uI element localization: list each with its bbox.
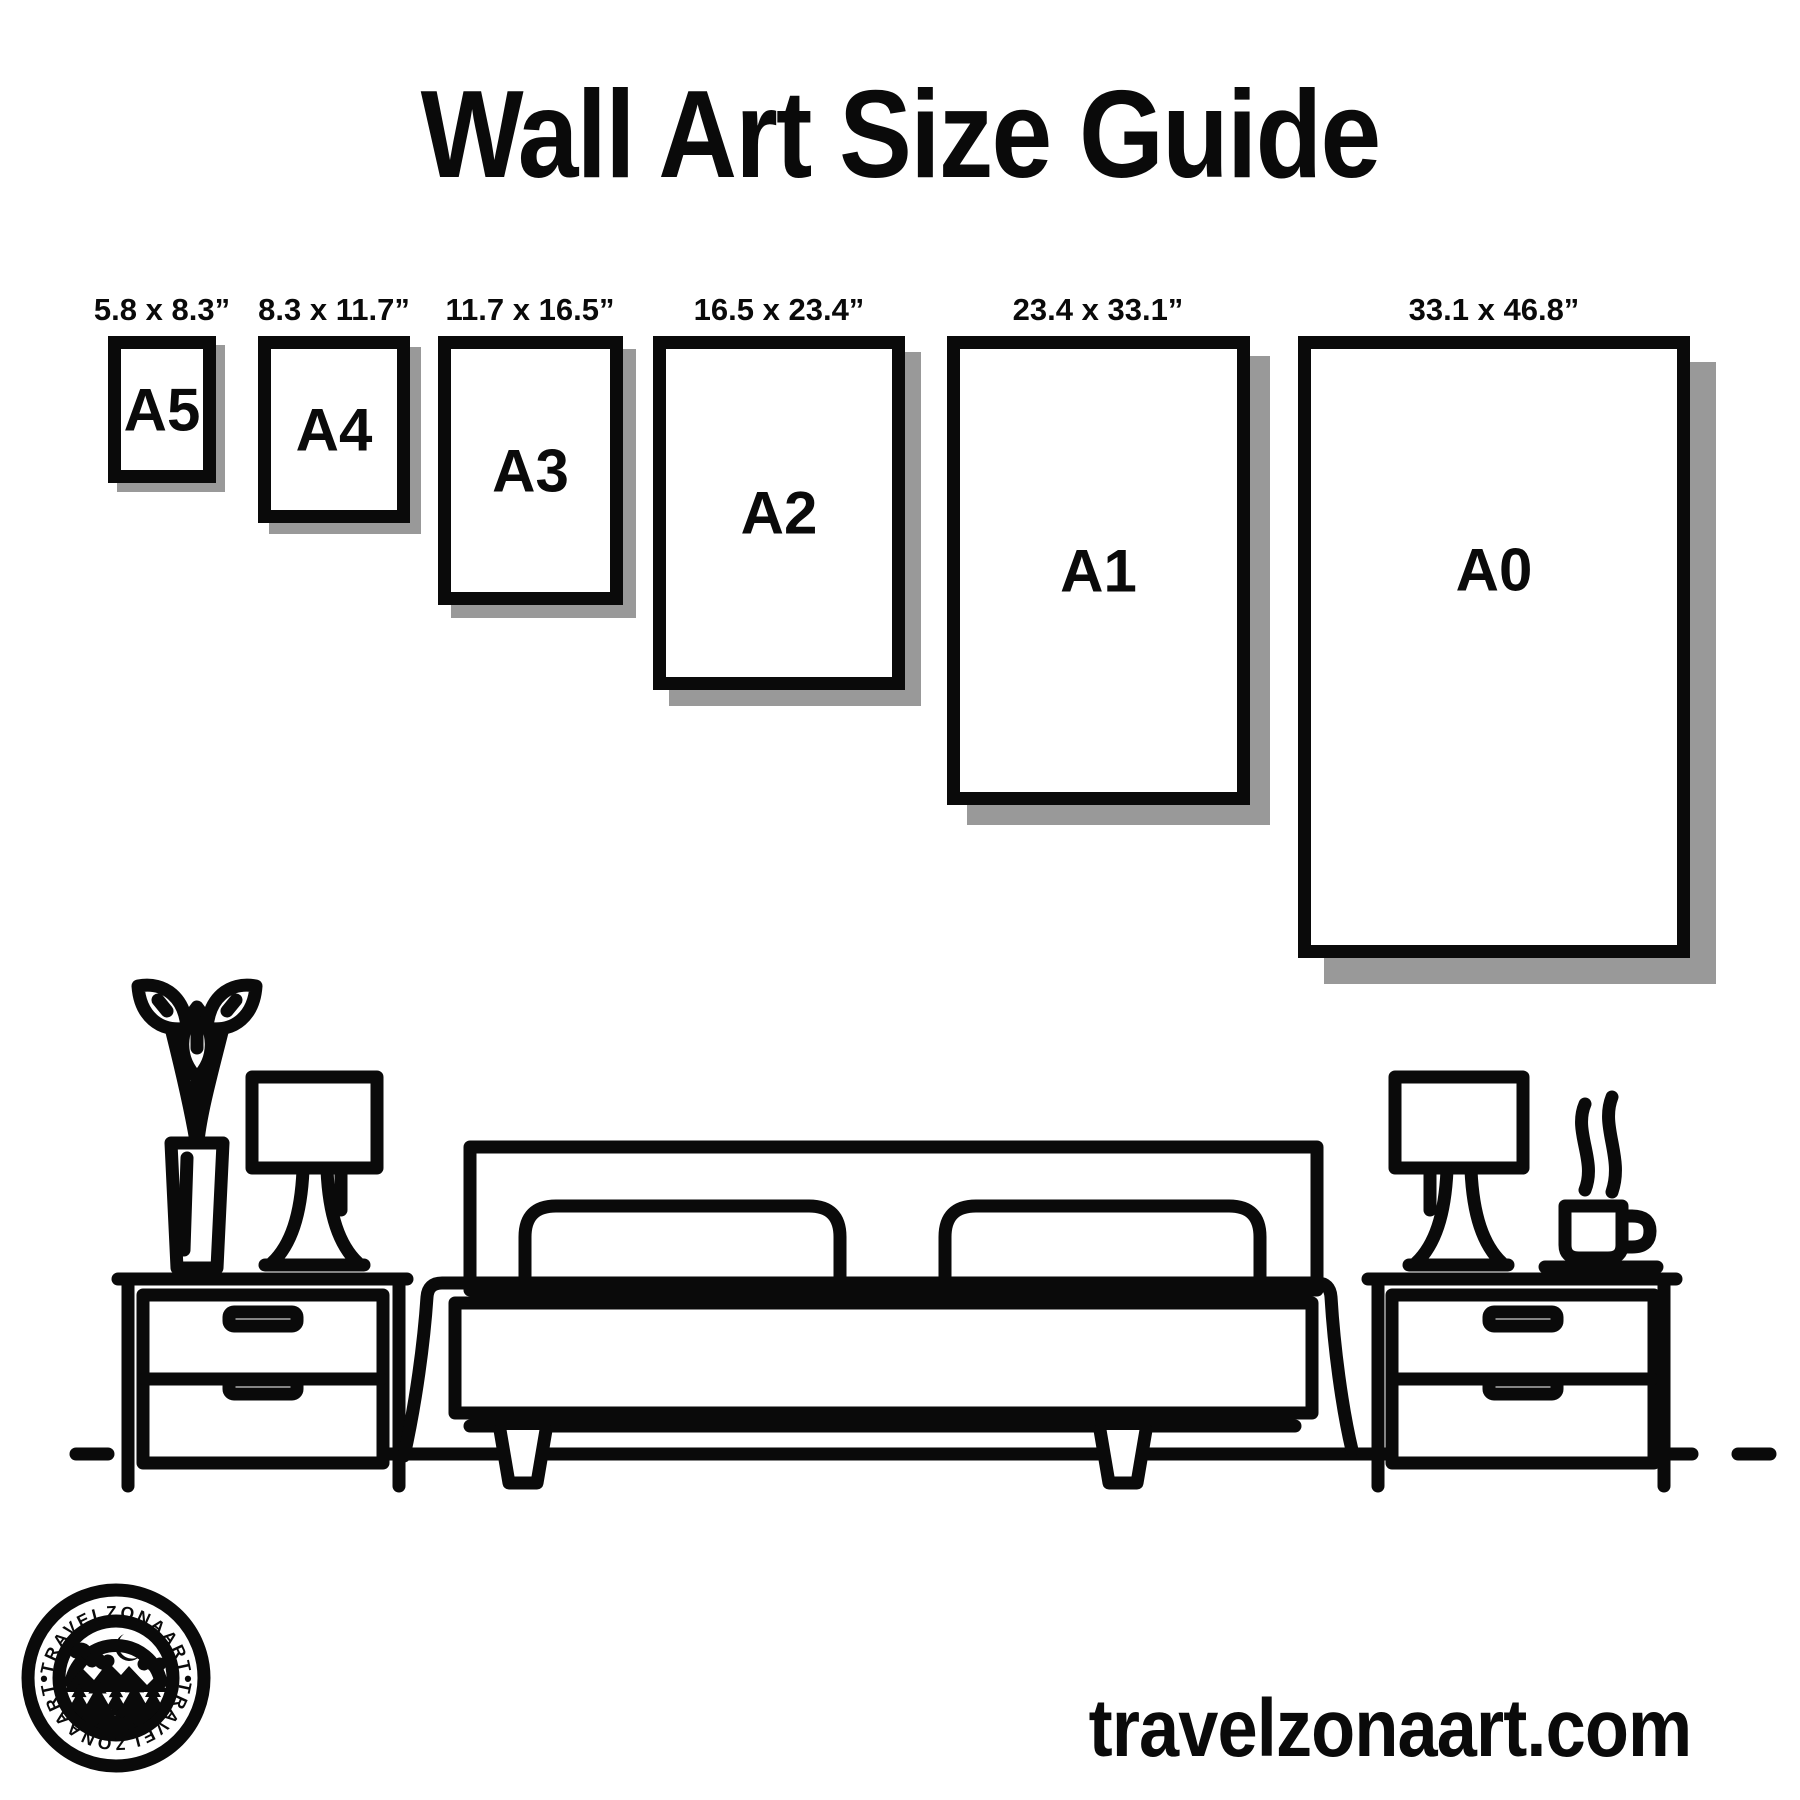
- plant-icon: [138, 985, 256, 1268]
- paper-frame-a2: A2: [653, 336, 905, 690]
- paper-code-a2: A2: [741, 479, 818, 548]
- bed-leg-right: [1100, 1430, 1146, 1483]
- paper-frame-a5: A5: [108, 336, 216, 483]
- page-title: Wall Art Size Guide: [108, 64, 1692, 206]
- pillow-left: [525, 1206, 840, 1283]
- bed-icon: [404, 1147, 1352, 1483]
- paper-frame-a1: A1: [947, 336, 1250, 805]
- nightstand-left-icon: [118, 1279, 407, 1486]
- mattress-front: [455, 1303, 1312, 1413]
- paper-code-a3: A3: [492, 436, 569, 505]
- paper-code-a0: A0: [1456, 535, 1533, 604]
- pillow-right: [945, 1206, 1260, 1283]
- nightstand-right-icon: [1368, 1279, 1676, 1486]
- paper-frame-a0: A0: [1298, 336, 1690, 958]
- bedroom-scene: [0, 940, 1800, 1520]
- size-label-a1: 23.4 x 33.1”: [948, 292, 1248, 328]
- paper-frame-a4: A4: [258, 336, 410, 523]
- logo-mountain-scene: [63, 1634, 169, 1729]
- paper-frame-a3: A3: [438, 336, 623, 605]
- logo-separator-dot-right: •: [184, 1666, 192, 1691]
- bed-leg-left: [500, 1430, 546, 1483]
- logo-separator-dot-left: •: [40, 1666, 48, 1691]
- size-label-a0: 33.1 x 46.8”: [1344, 292, 1644, 328]
- size-label-a2: 16.5 x 23.4”: [629, 292, 929, 328]
- paper-code-a5: A5: [124, 375, 201, 444]
- website-url: travelzonaart.com: [1056, 1682, 1725, 1776]
- wall-art-size-guide-poster: Wall Art Size Guide 5.8 x 8.3” 8.3 x 11.…: [0, 0, 1800, 1800]
- table-lamp-right-icon: [1395, 1077, 1523, 1265]
- brand-logo-badge: TRAVELZONAART TRAVELZONAART • •: [16, 1578, 216, 1778]
- coffee-cup-icon: [1545, 1097, 1657, 1267]
- paper-code-a1: A1: [1060, 536, 1137, 605]
- table-lamp-left-icon: [252, 1077, 377, 1265]
- paper-code-a4: A4: [296, 395, 373, 464]
